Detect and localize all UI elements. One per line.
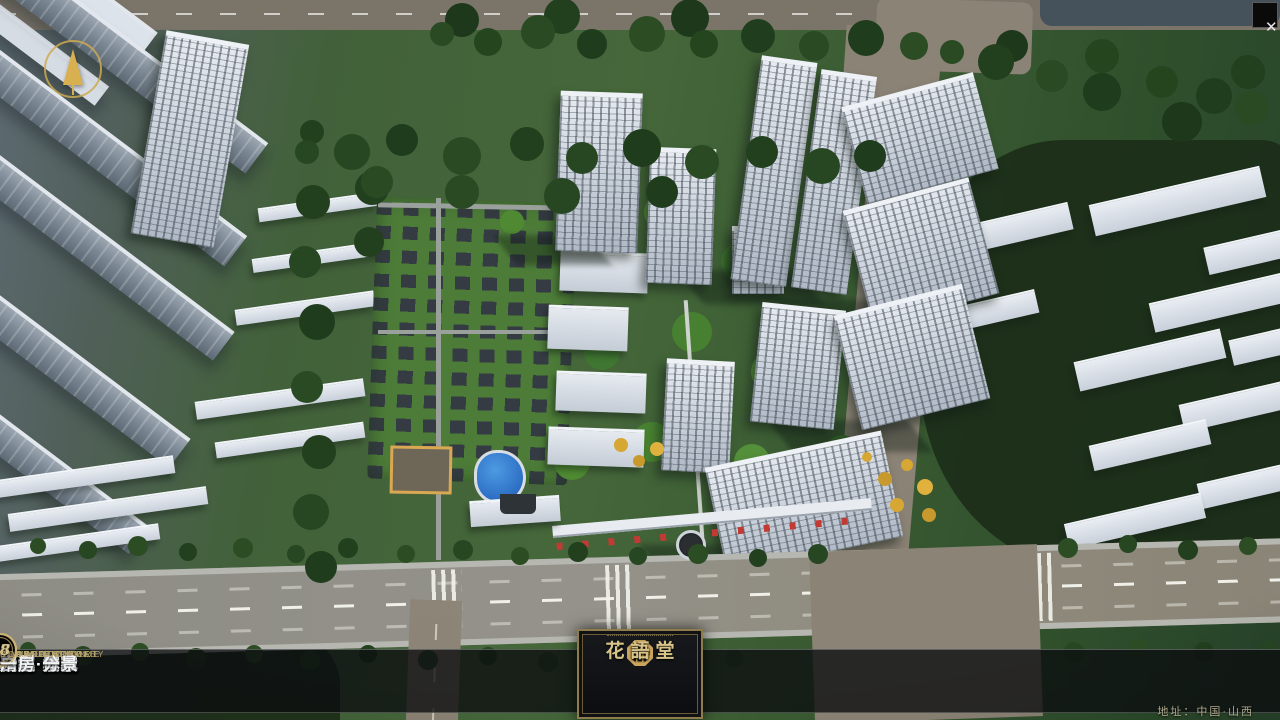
tree-cluster (430, 22, 454, 46)
project-name: 花語堂 (599, 636, 680, 663)
tree-cluster (295, 140, 319, 164)
close-button[interactable]: ✕ (1252, 2, 1278, 28)
sales-presentation-window: ✕ o1 品牌·介绍 BRAND SUPPORT o2 区位·价值 LOCATI… (0, 0, 1280, 720)
far-water (1040, 0, 1280, 26)
close-icon: ✕ (1265, 15, 1278, 39)
residential-tower (750, 302, 846, 430)
entrance-gate (500, 494, 536, 514)
midrise-block (555, 370, 646, 413)
flower-trees (862, 452, 872, 462)
residential-tower (646, 147, 717, 285)
midrise-block (547, 426, 644, 467)
residential-tower (661, 358, 735, 473)
compass-icon (44, 40, 102, 98)
tree-cluster (940, 40, 964, 64)
tree-cluster (500, 210, 524, 234)
crosswalk (605, 564, 635, 633)
courtyard-sales-office (390, 445, 453, 494)
project-logo[interactable]: 花語堂 (577, 629, 703, 719)
entrance-plaza (676, 530, 706, 560)
compass-tail (72, 85, 74, 95)
street-trees (30, 538, 46, 554)
masterplan-render (0, 0, 1280, 720)
midrise-block (547, 305, 628, 352)
nav-label-en: COMMUNITY (0, 650, 71, 659)
logo-tagline-rule (607, 635, 673, 636)
compass-needle (63, 49, 83, 85)
site-road (436, 198, 441, 560)
residential-tower (555, 91, 643, 254)
site-road (378, 330, 568, 334)
address-text: 地址：中国·山西 (1157, 703, 1254, 719)
